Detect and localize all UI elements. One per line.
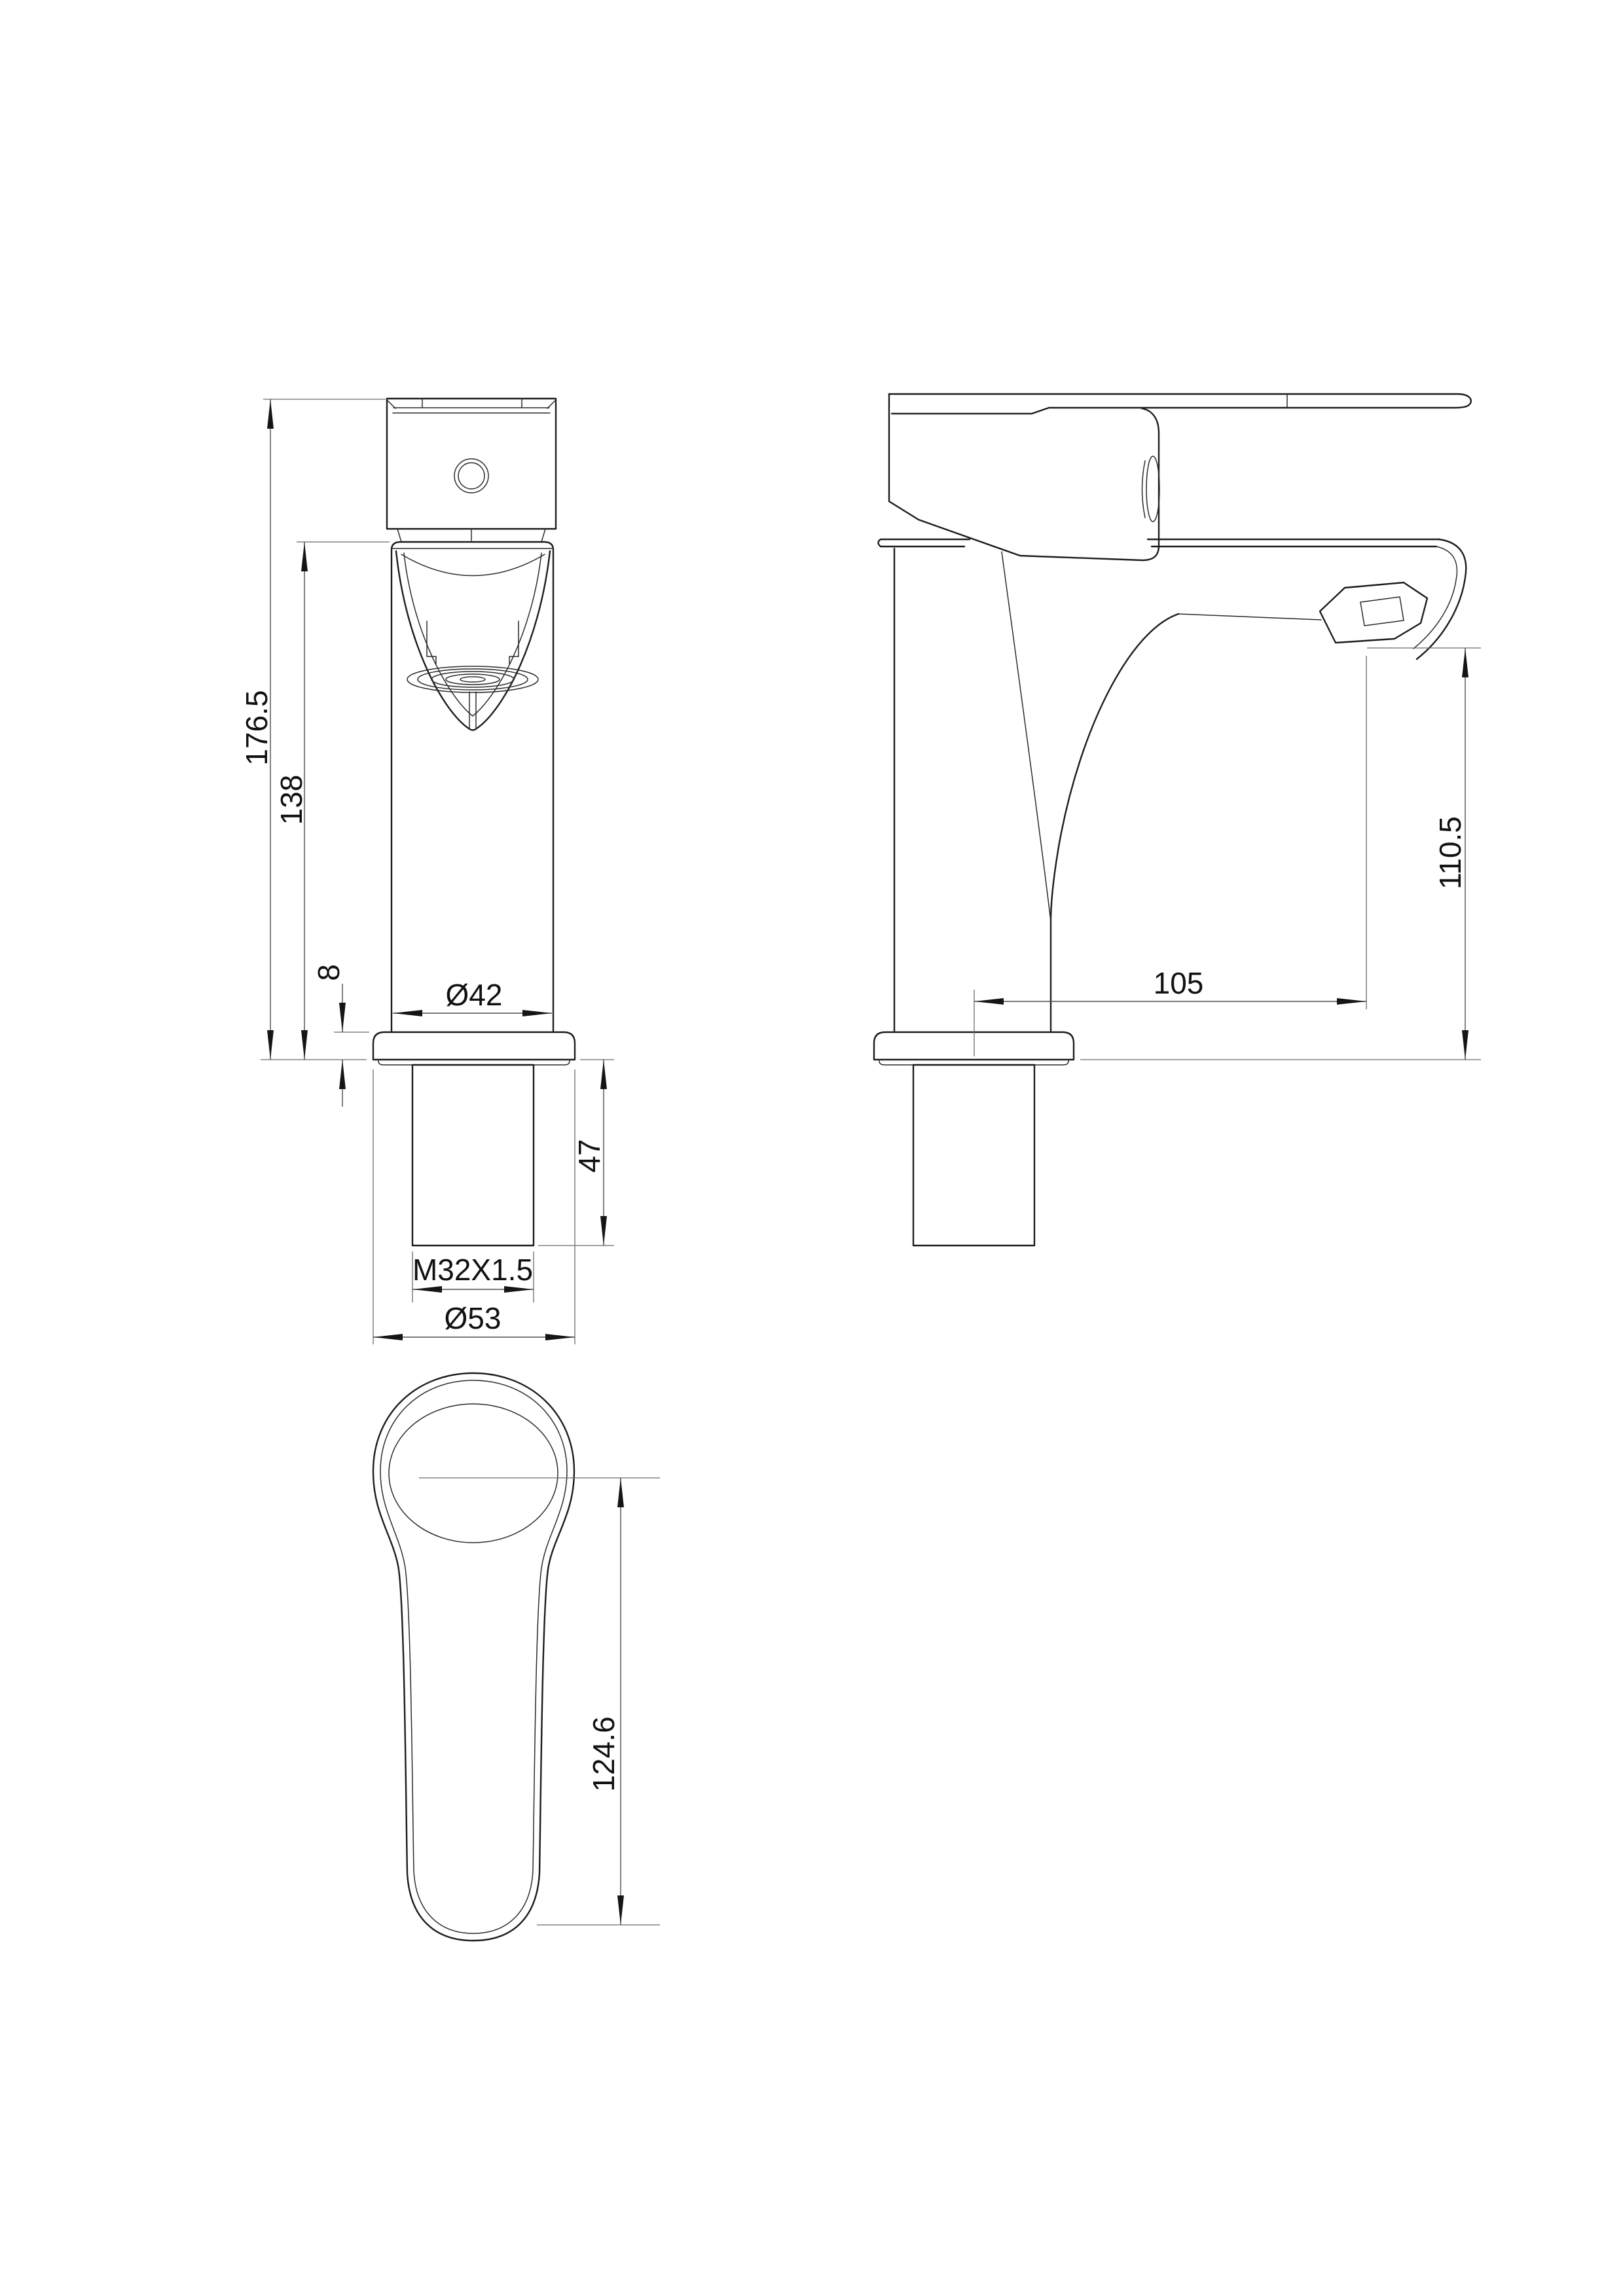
outlet-ring-detail [1360, 597, 1404, 626]
handle-cap-outline [387, 399, 556, 529]
dim-spout-reach: 105 [974, 966, 1366, 1001]
drawing-sheet: 176.5 138 8 Ø42 47 M32X1.5 [0, 0, 1623, 2296]
dim-label-spout-reach: 105 [1154, 966, 1204, 1000]
handle-button-outer [454, 459, 488, 493]
top-view: 124.6 [373, 1373, 660, 1941]
dim-label-thread-spec: M32X1.5 [412, 1253, 533, 1287]
front-dimensions: 176.5 138 8 Ø42 47 M32X1.5 [240, 399, 614, 1344]
aerator-ring [446, 674, 500, 685]
lever-outline [889, 394, 1471, 414]
threaded-shank [412, 1065, 534, 1246]
handle-boss-ellipse [389, 1404, 558, 1543]
dim-label-overall-height: 176.5 [240, 690, 274, 765]
handle-cap-band [388, 399, 555, 413]
dim-label-flange-diameter: Ø53 [445, 1301, 501, 1335]
aerator-ring [407, 666, 538, 692]
aerator-housing [427, 621, 519, 664]
dim-body-height: 138 [274, 542, 308, 1060]
outlet-housing [1320, 583, 1427, 643]
dim-flange-thickness: 8 [312, 964, 346, 1107]
side-view: 105 110.5 [874, 394, 1481, 1246]
handle-button-inner [458, 463, 484, 489]
dim-shank-length: 47 [572, 1060, 606, 1246]
dim-flange-diameter: Ø53 [373, 1301, 575, 1337]
spout-shroud-top-arc [401, 554, 545, 576]
aerator-ring [418, 669, 528, 690]
dim-label-flange-thickness: 8 [312, 964, 346, 981]
dim-label-outlet-height: 110.5 [1433, 816, 1467, 889]
spout-head-profile-inner [1413, 547, 1457, 649]
dim-label-body-diameter: Ø42 [446, 978, 503, 1012]
dim-outlet-height: 110.5 [1433, 648, 1467, 1060]
dim-handle-length: 124.6 [587, 1478, 621, 1925]
drawing-canvas: 176.5 138 8 Ø42 47 M32X1.5 [0, 0, 1623, 2296]
dim-label-body-height: 138 [274, 775, 308, 825]
base-flange [373, 1032, 575, 1060]
dim-label-handle-length: 124.6 [587, 1716, 621, 1791]
dim-body-diameter: Ø42 [393, 978, 552, 1013]
handle-outer-contour [373, 1373, 574, 1941]
dim-overall-height: 176.5 [240, 399, 274, 1060]
threaded-shank-side [913, 1065, 1034, 1246]
front-faucet [373, 399, 575, 1246]
spout-shroud-inner [404, 553, 541, 716]
side-faucet [874, 394, 1471, 1246]
spout-head-profile [1417, 539, 1466, 659]
aerator-ring [460, 677, 485, 682]
cap-side-lens [1146, 456, 1159, 522]
cap-side-lens-arc [1142, 461, 1146, 518]
cone-silhouette-line [1002, 552, 1051, 922]
handle-block-outline [889, 394, 1159, 560]
neck-lines [397, 529, 545, 542]
spout-shroud-outer [396, 551, 550, 730]
stream-lines [469, 692, 476, 728]
front-extension-lines [261, 399, 614, 1344]
aerator-face [407, 666, 538, 692]
dim-thread-spec: M32X1.5 [412, 1253, 534, 1289]
handle-inner-contour [380, 1380, 567, 1933]
dim-label-shank-length: 47 [572, 1139, 606, 1172]
front-view: 176.5 138 8 Ø42 47 M32X1.5 [240, 399, 614, 1344]
spout-sweep-curve [1051, 614, 1178, 922]
handle-top-outline [373, 1373, 574, 1941]
spout-underside [1178, 614, 1321, 620]
